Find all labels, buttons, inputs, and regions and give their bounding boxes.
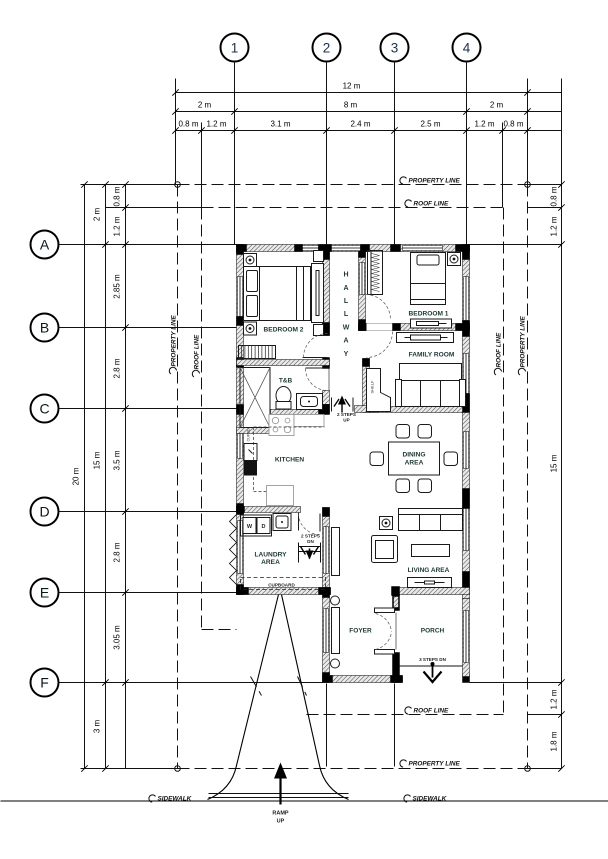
svg-text:A: A	[343, 338, 348, 345]
svg-text:2.85 m: 2.85 m	[113, 274, 122, 299]
svg-text:D: D	[262, 524, 266, 530]
svg-text:PROPERTY LINE: PROPERTY LINE	[171, 315, 178, 367]
svg-text:UP: UP	[343, 418, 349, 423]
svg-text:2.8 m: 2.8 m	[113, 542, 122, 562]
svg-text:ROOF LINE: ROOF LINE	[496, 332, 503, 368]
svg-text:3.05 m: 3.05 m	[113, 625, 122, 650]
svg-text:1: 1	[231, 41, 239, 56]
svg-text:2 m: 2 m	[198, 101, 212, 110]
svg-text:L: L	[344, 311, 349, 318]
svg-text:15 m: 15 m	[550, 454, 559, 472]
svg-text:KITCHEN: KITCHEN	[275, 457, 305, 464]
svg-text:3 STEPS DN: 3 STEPS DN	[419, 657, 446, 662]
svg-text:CUPBD: CUPBD	[247, 428, 251, 442]
svg-text:L: L	[344, 298, 349, 305]
svg-text:1.2 m: 1.2 m	[550, 689, 559, 709]
svg-text:8 m: 8 m	[344, 101, 358, 110]
svg-text:T&B: T&B	[279, 378, 293, 385]
svg-text:AREA: AREA	[261, 559, 280, 566]
svg-text:PROPERTY LINE: PROPERTY LINE	[409, 178, 461, 185]
svg-text:BEDROOM 2: BEDROOM 2	[264, 327, 304, 334]
svg-text:3: 3	[391, 41, 399, 56]
svg-text:LIVING AREA: LIVING AREA	[408, 567, 450, 574]
svg-text:B: B	[40, 320, 49, 336]
svg-text:15 m: 15 m	[93, 451, 102, 469]
svg-text:D: D	[39, 504, 49, 520]
svg-text:2: 2	[323, 41, 331, 56]
svg-text:20 m: 20 m	[72, 467, 81, 485]
svg-text:3.5 m: 3.5 m	[113, 450, 122, 470]
svg-text:3.1 m: 3.1 m	[270, 120, 290, 129]
svg-text:Y: Y	[344, 351, 349, 358]
svg-text:12 m: 12 m	[343, 82, 361, 91]
svg-text:2 STEPS: 2 STEPS	[337, 412, 356, 417]
svg-text:FAMILY ROOM: FAMILY ROOM	[409, 352, 455, 359]
svg-text:C: C	[39, 401, 49, 417]
svg-text:2.4 m: 2.4 m	[350, 120, 370, 129]
svg-text:SHELF: SHELF	[370, 380, 375, 393]
svg-text:2 m: 2 m	[490, 101, 504, 110]
svg-text:PORCH: PORCH	[421, 628, 445, 635]
svg-text:DN: DN	[307, 539, 314, 544]
svg-text:4: 4	[463, 41, 471, 56]
svg-text:1.2 m: 1.2 m	[206, 120, 226, 129]
svg-text:PROPERTY LINE: PROPERTY LINE	[409, 761, 461, 768]
svg-text:UP: UP	[277, 819, 285, 825]
svg-text:0.8 m: 0.8 m	[178, 120, 198, 129]
svg-text:1.2 m: 1.2 m	[113, 216, 122, 236]
svg-text:CUPBOARD: CUPBOARD	[268, 583, 295, 588]
svg-text:AREA: AREA	[405, 460, 424, 467]
svg-text:H: H	[343, 272, 348, 279]
svg-text:ROOF LINE: ROOF LINE	[194, 334, 201, 370]
svg-text:1.2 m: 1.2 m	[550, 216, 559, 236]
svg-text:DINING: DINING	[402, 452, 425, 459]
svg-text:W: W	[247, 524, 253, 530]
svg-text:LAUNDRY: LAUNDRY	[255, 552, 288, 559]
svg-text:0.8 m: 0.8 m	[113, 186, 122, 206]
svg-text:ROOF LINE: ROOF LINE	[414, 708, 450, 715]
svg-text:SIDEWALK: SIDEWALK	[413, 796, 447, 803]
svg-text:A: A	[40, 237, 50, 253]
svg-text:2 m: 2 m	[93, 208, 102, 222]
svg-text:PROPERTY LINE: PROPERTY LINE	[520, 316, 527, 368]
svg-text:FOYER: FOYER	[349, 628, 372, 635]
svg-text:F: F	[40, 675, 49, 691]
svg-text:RAMP: RAMP	[272, 811, 289, 817]
svg-text:W: W	[343, 325, 350, 332]
svg-text:1.2 m: 1.2 m	[474, 120, 494, 129]
svg-text:0.8 m: 0.8 m	[550, 186, 559, 206]
svg-text:2 STEPS: 2 STEPS	[301, 534, 320, 539]
svg-text:3 m: 3 m	[93, 720, 102, 734]
svg-text:ROOF LINE: ROOF LINE	[414, 201, 450, 208]
svg-text:E: E	[40, 585, 49, 601]
svg-text:A: A	[343, 285, 348, 292]
svg-text:BEDROOM 1: BEDROOM 1	[409, 311, 449, 318]
svg-text:SIDEWALK: SIDEWALK	[158, 796, 192, 803]
svg-text:0.8 m: 0.8 m	[503, 120, 523, 129]
svg-text:2.5 m: 2.5 m	[420, 120, 440, 129]
svg-text:1.8 m: 1.8 m	[550, 731, 559, 751]
svg-text:2.8 m: 2.8 m	[113, 358, 122, 378]
